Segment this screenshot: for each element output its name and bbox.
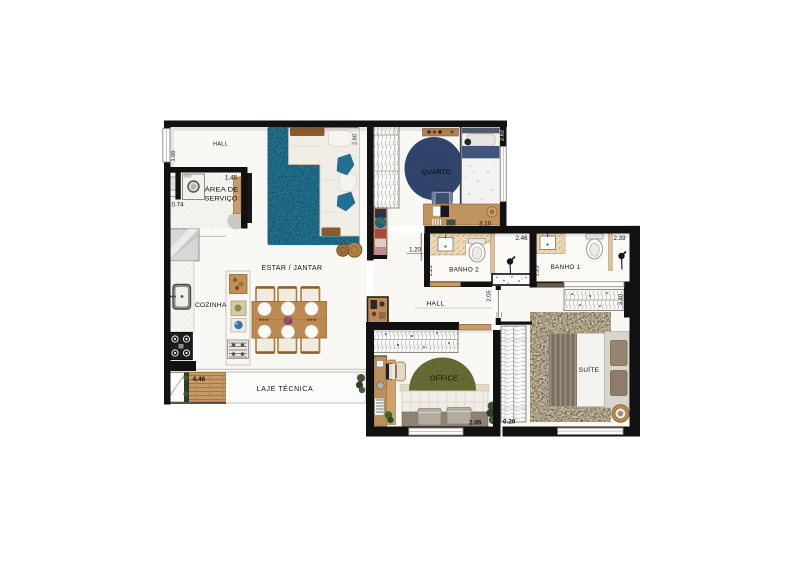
svg-text:2.05: 2.05 bbox=[469, 420, 482, 427]
svg-text:1.45: 1.45 bbox=[225, 175, 238, 182]
svg-text:SUÍTE: SUÍTE bbox=[579, 365, 600, 374]
svg-text:3.40: 3.40 bbox=[619, 294, 625, 305]
svg-text:BANHO 1: BANHO 1 bbox=[551, 264, 581, 271]
svg-text:4.46: 4.46 bbox=[193, 376, 206, 383]
svg-text:0.74: 0.74 bbox=[172, 202, 185, 209]
svg-text:1.20: 1.20 bbox=[409, 248, 421, 254]
svg-text:1.23: 1.23 bbox=[535, 265, 541, 276]
svg-text:ÁREA DE: ÁREA DE bbox=[205, 185, 239, 194]
svg-text:1.00: 1.00 bbox=[171, 151, 177, 162]
svg-text:ESTAR / JANTAR: ESTAR / JANTAR bbox=[262, 265, 323, 272]
svg-text:HALL: HALL bbox=[426, 301, 444, 308]
svg-text:2.62: 2.62 bbox=[500, 130, 506, 141]
svg-text:SERVIÇO: SERVIÇO bbox=[205, 196, 238, 203]
svg-text:2.46: 2.46 bbox=[516, 235, 529, 242]
svg-text:1.23: 1.23 bbox=[428, 265, 434, 276]
svg-text:0.20: 0.20 bbox=[503, 419, 516, 426]
svg-text:2.39: 2.39 bbox=[614, 235, 627, 242]
svg-text:2.60: 2.60 bbox=[353, 134, 359, 145]
svg-text:2.05: 2.05 bbox=[487, 290, 493, 301]
svg-text:HALL: HALL bbox=[213, 142, 228, 148]
svg-text:COZINHA: COZINHA bbox=[195, 302, 227, 309]
svg-text:LAJE TÉCNICA: LAJE TÉCNICA bbox=[257, 384, 313, 393]
svg-text:BANHO 2: BANHO 2 bbox=[449, 267, 479, 274]
svg-text:QUARTO: QUARTO bbox=[422, 169, 452, 176]
svg-text:OFFICE: OFFICE bbox=[430, 376, 458, 383]
